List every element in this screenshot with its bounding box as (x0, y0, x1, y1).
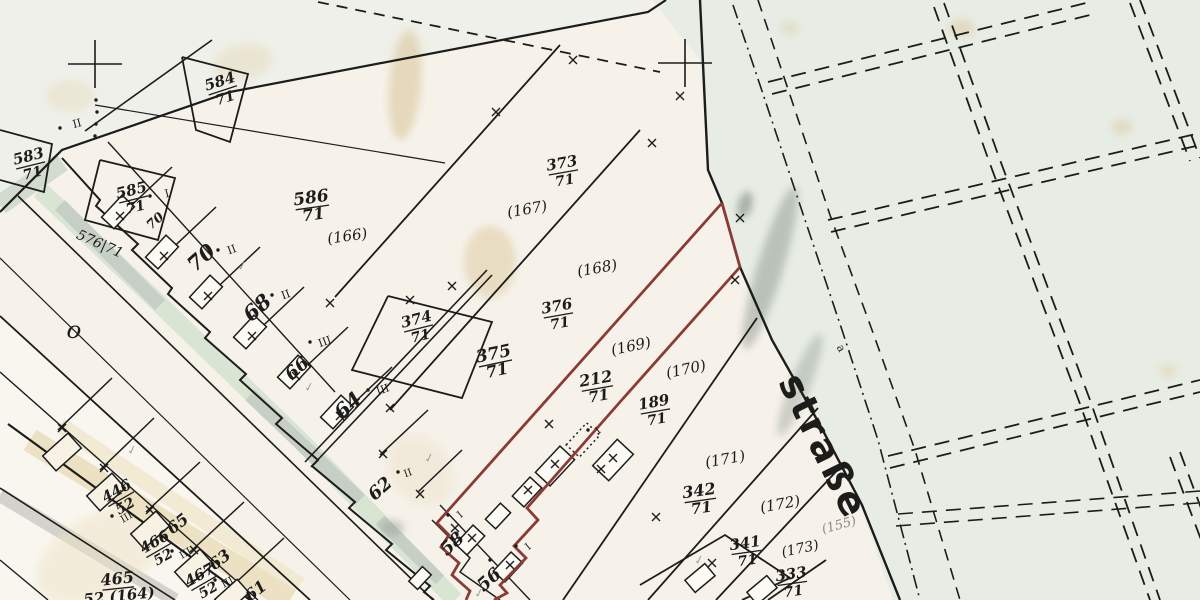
point-dot (93, 134, 96, 137)
cadastral-map-page: ✓✓✓✓✓✓5847158371585715867137371376713747… (0, 0, 1200, 600)
point-dot (396, 470, 399, 473)
svg-text:71: 71 (737, 552, 759, 571)
cadastral-map: ✓✓✓✓✓✓5847158371585715867137371376713747… (0, 0, 1200, 600)
svg-text:71: 71 (587, 385, 611, 406)
point-dot (366, 388, 369, 391)
point-dot (216, 248, 219, 251)
svg-text:71: 71 (549, 314, 571, 333)
paper-stain (464, 226, 516, 298)
point-dot (586, 428, 589, 431)
point-dot (58, 126, 61, 129)
point-dot (514, 544, 517, 547)
point-dot (270, 293, 273, 296)
paper-stain (1159, 364, 1177, 378)
paper-stain (1111, 119, 1133, 135)
paper-stain (46, 80, 94, 112)
point-dot (148, 194, 151, 197)
svg-text:71: 71 (646, 410, 668, 429)
svg-text:71: 71 (301, 203, 326, 225)
point-dot (308, 340, 311, 343)
point-dot (488, 558, 491, 561)
paper-stain (781, 21, 799, 35)
cadastral-map-svg: ✓✓✓✓✓✓5847158371585715867137371376713747… (0, 0, 1200, 600)
svg-text:71: 71 (690, 498, 713, 519)
svg-text:71: 71 (554, 171, 576, 190)
point-dot (446, 513, 449, 516)
point-dot (94, 122, 97, 125)
point-dot (94, 98, 97, 101)
point-dot (95, 110, 98, 113)
paper-stain (380, 520, 404, 536)
point-dot (110, 514, 113, 517)
svg-text:71: 71 (783, 583, 805, 600)
